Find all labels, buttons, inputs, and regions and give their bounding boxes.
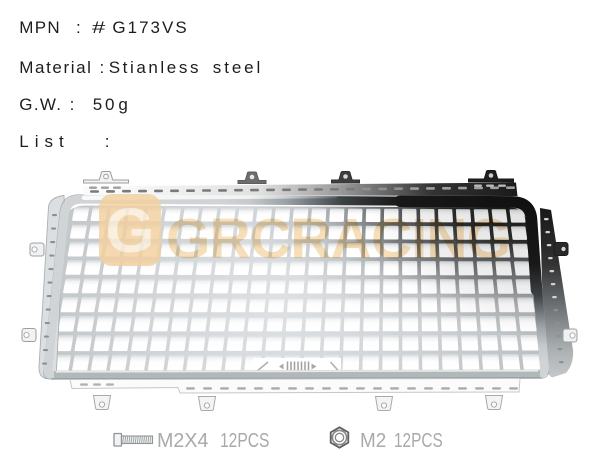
svg-text:GRCRACING: GRCRACING bbox=[166, 207, 510, 271]
svg-text:G: G bbox=[105, 196, 154, 266]
